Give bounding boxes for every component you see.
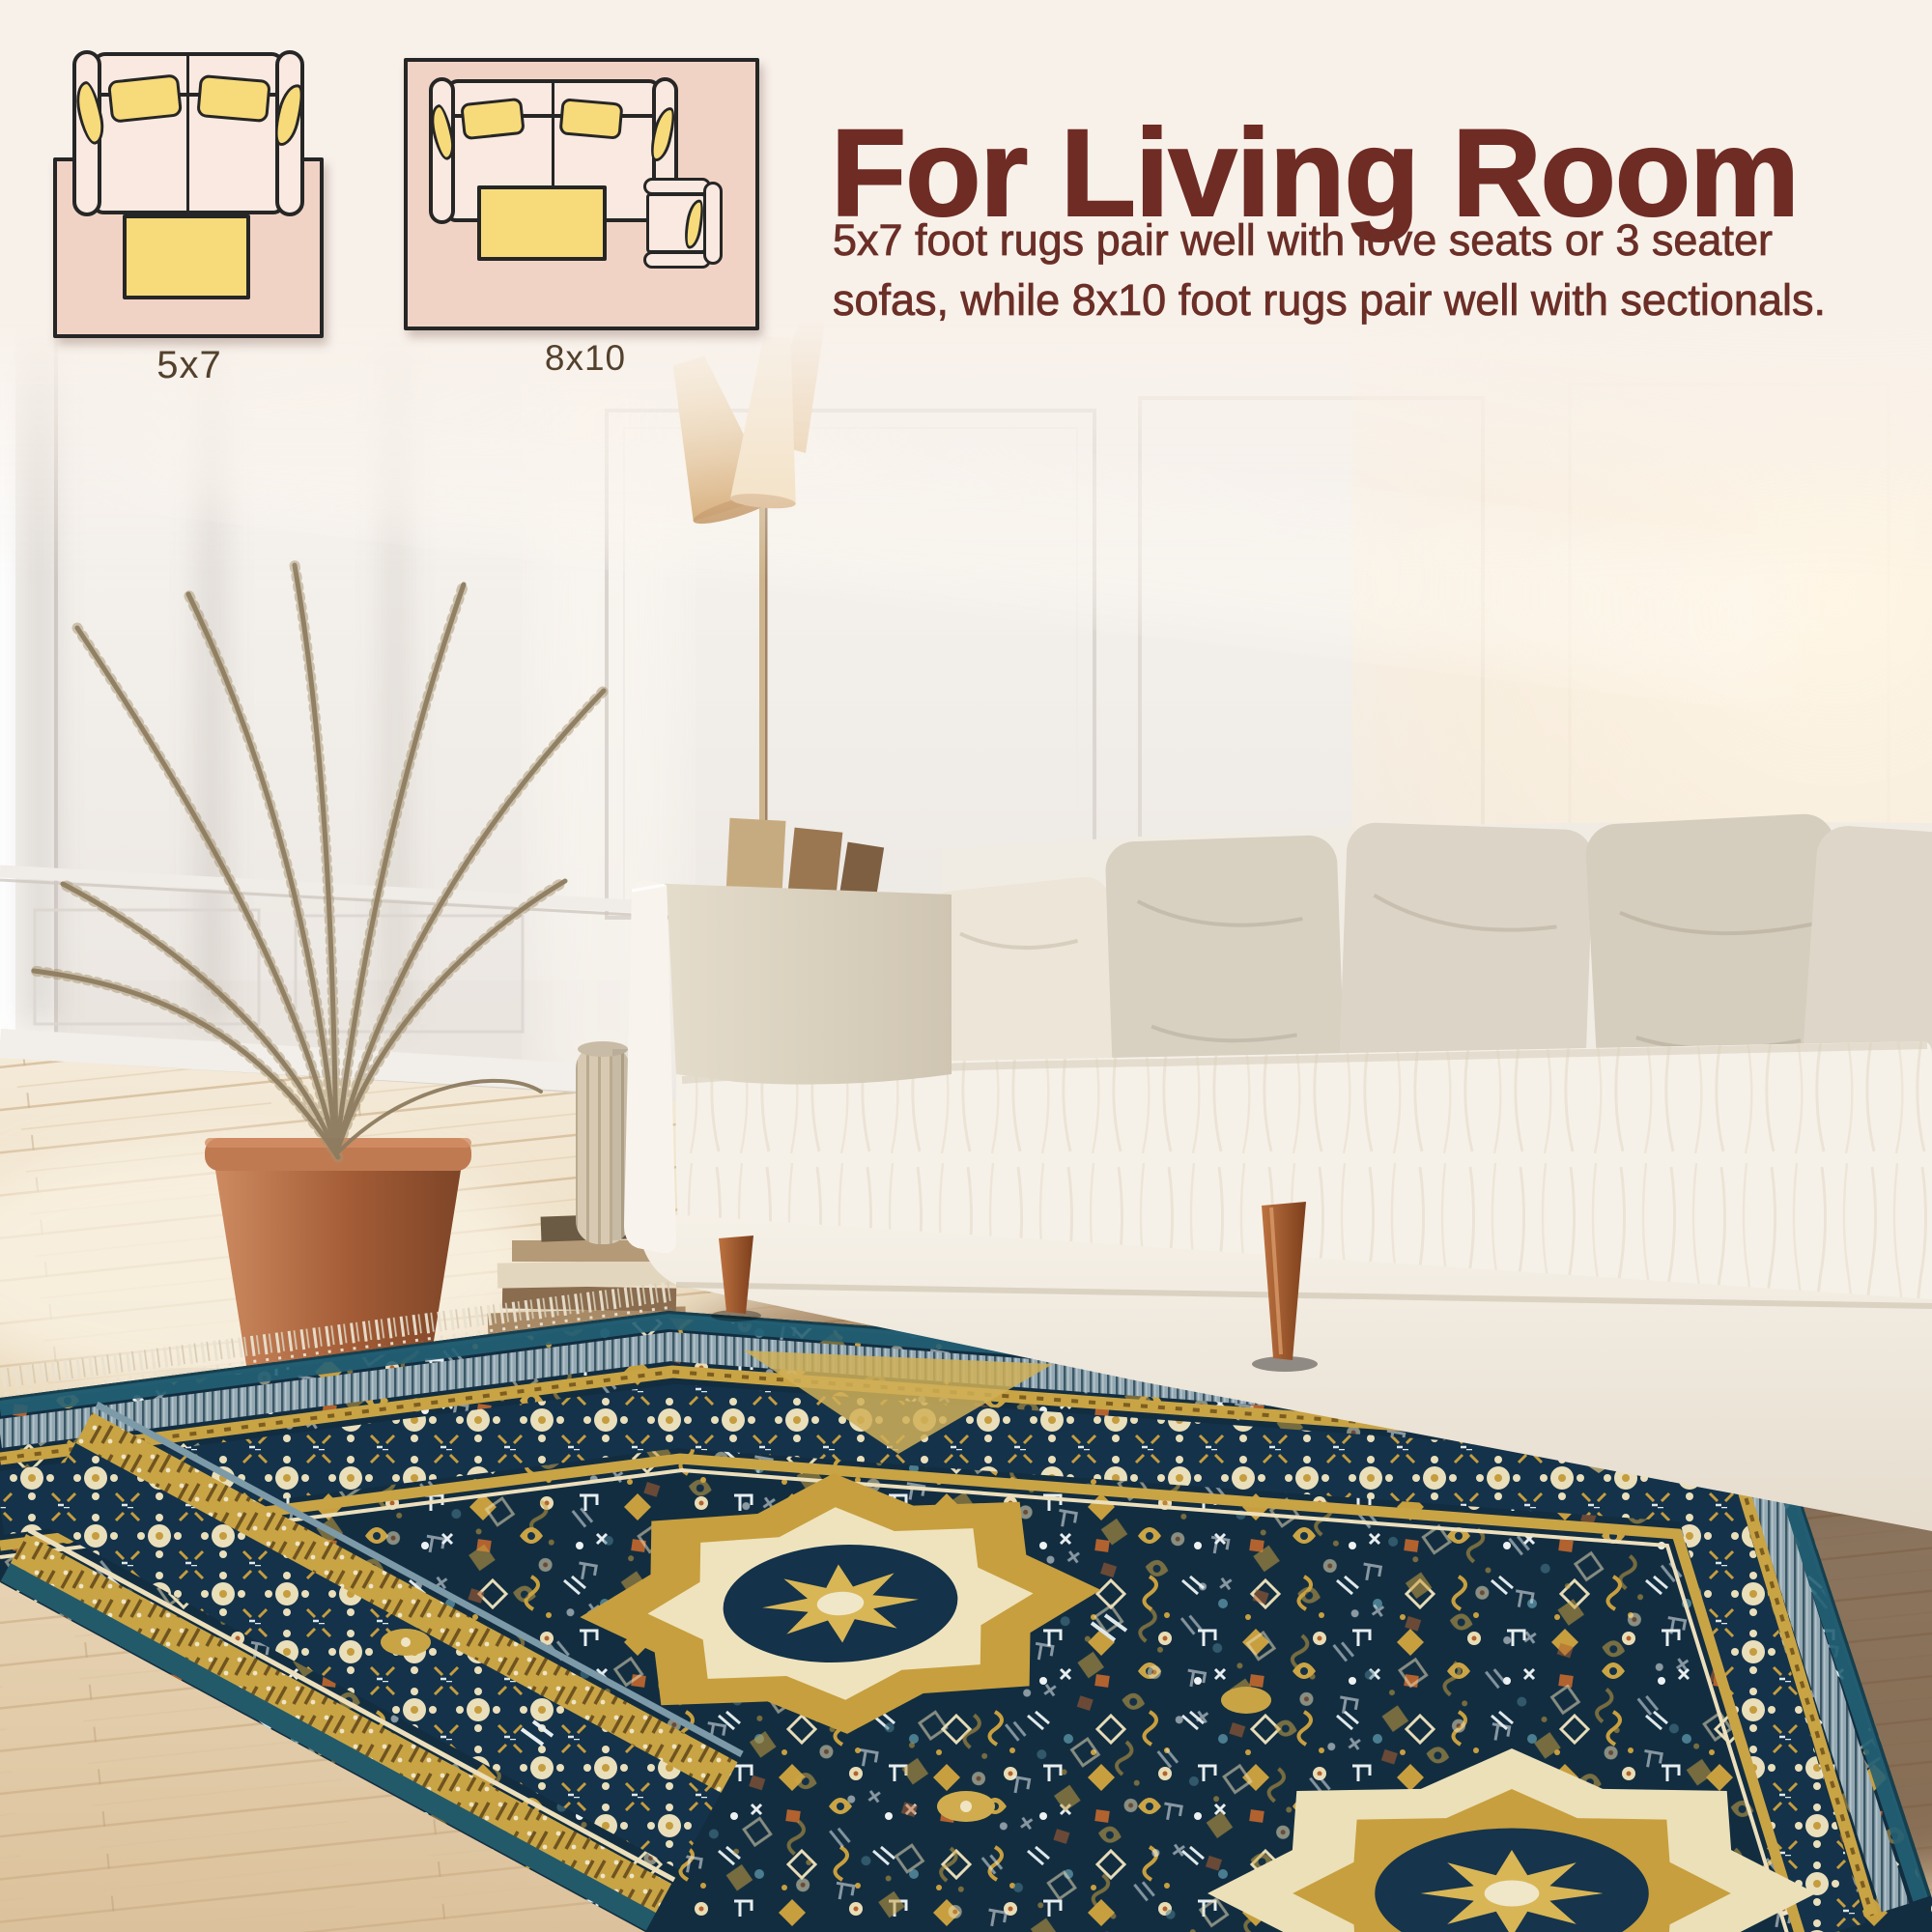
product-infographic: For Living Room 5x7 foot rugs pair well … — [0, 0, 1932, 1932]
sofa-arm — [645, 883, 952, 1085]
description: 5x7 foot rugs pair well with love seats … — [833, 211, 1932, 330]
armchair-arm-top — [643, 178, 711, 195]
sofa-pillow-icon — [558, 98, 623, 139]
info-band: For Living Room 5x7 foot rugs pair well … — [0, 0, 1932, 599]
rug-size-diagram-5x7: 5x7 — [53, 39, 326, 429]
armchair-arm-bottom — [643, 251, 711, 269]
diagram-label-5x7: 5x7 — [53, 344, 326, 387]
diagram-label-8x10: 8x10 — [404, 338, 767, 379]
armchair-backrest — [703, 182, 723, 265]
rug-size-diagram-8x10: 8x10 — [404, 50, 767, 398]
pleated-vase — [576, 1041, 630, 1244]
sofa-seat-divider — [186, 56, 189, 211]
description-line-1: 5x7 foot rugs pair well with love seats … — [833, 211, 1932, 270]
sofa-pillow-icon — [107, 73, 183, 123]
description-line-2: sofas, while 8x10 foot rugs pair well wi… — [833, 270, 1932, 330]
sofa-pillow-icon — [460, 98, 526, 140]
sofa-pillow-icon — [196, 74, 271, 123]
coffee-table-icon — [123, 214, 250, 299]
coffee-table-icon — [477, 185, 607, 261]
